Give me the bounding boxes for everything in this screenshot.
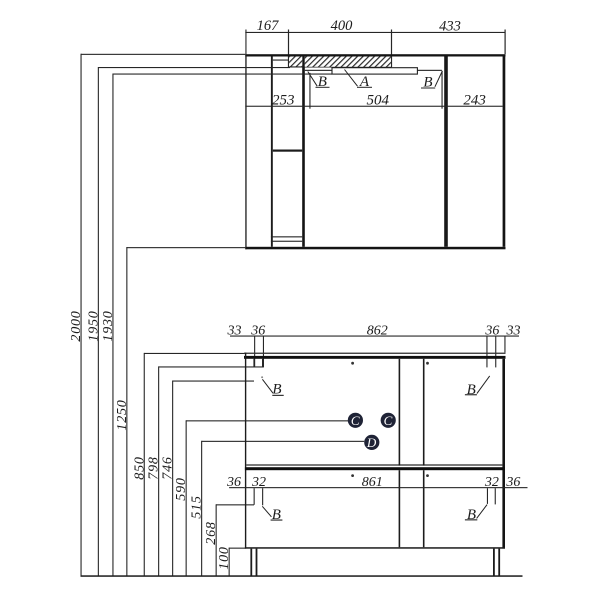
svg-text:2000: 2000 (69, 310, 84, 341)
svg-text:433: 433 (439, 18, 461, 34)
svg-text:850: 850 (132, 456, 147, 479)
svg-text:36: 36 (505, 475, 520, 490)
svg-text:B: B (467, 507, 476, 523)
svg-text:100: 100 (217, 546, 232, 569)
svg-text:B: B (318, 74, 327, 90)
svg-text:32: 32 (251, 475, 266, 490)
svg-text:33: 33 (506, 324, 521, 339)
svg-text:590: 590 (174, 477, 189, 500)
svg-text:C: C (351, 413, 360, 428)
svg-text:504: 504 (367, 92, 390, 108)
svg-text:33: 33 (227, 324, 242, 339)
svg-text:1950: 1950 (86, 310, 101, 341)
svg-text:36: 36 (226, 475, 241, 490)
svg-text:167: 167 (257, 18, 280, 34)
svg-text:B: B (423, 75, 432, 91)
svg-text:1930: 1930 (101, 310, 116, 341)
svg-text:253: 253 (272, 92, 295, 108)
svg-text:1250: 1250 (115, 399, 130, 430)
svg-text:798: 798 (147, 456, 162, 479)
svg-text:B: B (467, 382, 476, 398)
svg-text:36: 36 (484, 324, 499, 339)
svg-text:861: 861 (362, 475, 383, 490)
svg-text:515: 515 (190, 495, 205, 518)
svg-text:36: 36 (250, 324, 265, 339)
svg-text:A: A (359, 74, 370, 90)
svg-text:32: 32 (484, 475, 499, 490)
svg-text:C: C (384, 413, 393, 428)
svg-text:B: B (272, 382, 281, 398)
svg-text:243: 243 (463, 93, 486, 109)
svg-text:B: B (272, 507, 281, 523)
svg-text:D: D (366, 435, 377, 450)
svg-text:268: 268 (204, 521, 219, 544)
svg-text:746: 746 (161, 456, 176, 479)
svg-text:862: 862 (367, 324, 388, 339)
svg-text:400: 400 (331, 18, 354, 34)
